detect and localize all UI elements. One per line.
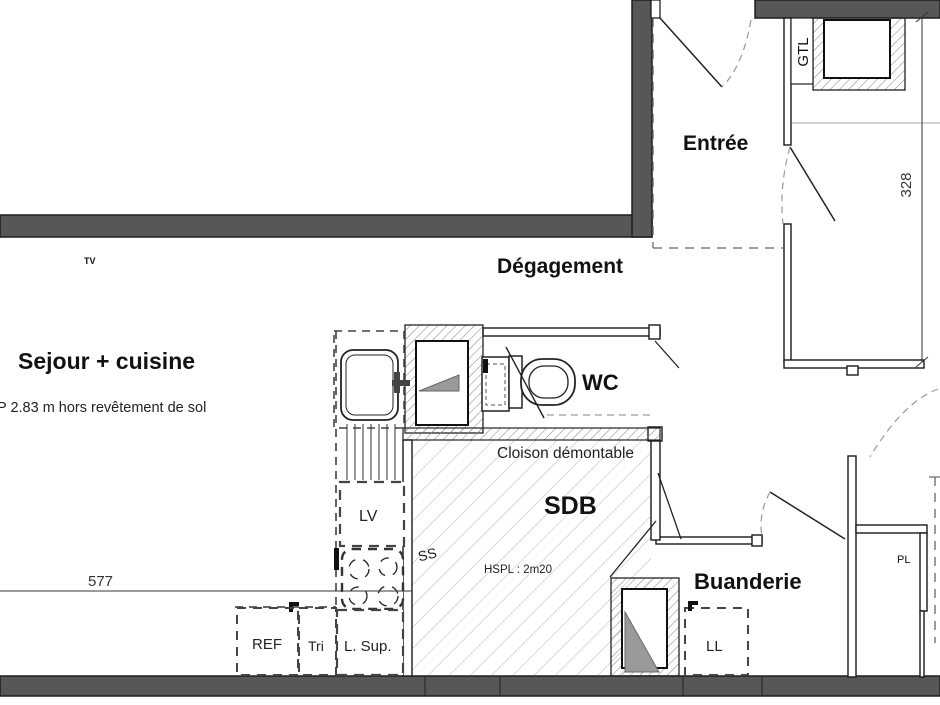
- label-tri: Tri: [308, 638, 324, 654]
- removable-partition-wall: [403, 428, 660, 440]
- entry-door-leaf: [660, 18, 722, 87]
- label-ref: REF: [252, 636, 282, 653]
- label-entree: Entrée: [683, 132, 748, 155]
- wall-top-left-horizontal: [0, 215, 652, 237]
- label-gtl: GTL: [795, 37, 812, 66]
- entry-door-swing: [722, 20, 751, 87]
- wall-buanderie-jamb: [752, 535, 762, 546]
- label-lsup: L. Sup.: [344, 638, 392, 655]
- label-ceiling-note: P 2.83 m hors revêtement de sol: [0, 400, 206, 416]
- wall-buanderie-top: [656, 537, 762, 544]
- label-dim-328: 328: [898, 172, 915, 197]
- buanderie-door-swing: [761, 492, 770, 537]
- wall-bottom: [0, 676, 940, 696]
- floor-plan-drawing: Sejour + cuisine P 2.83 m hors revêtemen…: [0, 0, 940, 705]
- wall-closet-top: [856, 525, 927, 533]
- cooktop-box: [342, 549, 403, 609]
- label-wc: WC: [582, 370, 619, 395]
- label-ll: LL: [706, 638, 723, 655]
- tiny-code-mark: [334, 548, 339, 570]
- wall-closet-vertical: [848, 456, 856, 677]
- drainer-stripes: [347, 424, 395, 480]
- wall-wc-jamb: [649, 325, 660, 339]
- wall-entree-right-upper: [784, 18, 791, 145]
- label-pl: PL: [897, 554, 910, 566]
- sdb-door-leaf: [658, 473, 681, 539]
- wall-closet-right-lower: [920, 611, 924, 677]
- floor-plan-page: Sejour + cuisine P 2.83 m hors revêtemen…: [0, 0, 940, 705]
- label-sejour-cuisine: Sejour + cuisine: [18, 348, 195, 374]
- label-hspl: HSPL : 2m20: [484, 564, 552, 576]
- tiny-code-mark-2: [483, 359, 488, 373]
- hall-door-swing: [870, 389, 938, 457]
- wall-wc-top: [483, 328, 660, 336]
- dashed-boundaries: [653, 18, 935, 643]
- label-tv: TV: [84, 256, 96, 266]
- kitchen: [235, 331, 410, 675]
- faucet-icon-2: [394, 372, 400, 393]
- wall-sdb-left: [403, 440, 412, 676]
- label-sdb: SDB: [544, 492, 597, 520]
- wc-fixtures: [482, 356, 575, 411]
- label-degagement: Dégagement: [497, 255, 623, 278]
- wall-hall-jamb: [847, 366, 858, 375]
- label-buanderie: Buanderie: [694, 569, 802, 594]
- wall-entree-right-lower: [784, 224, 791, 362]
- wall-top-left-vertical: [632, 0, 652, 237]
- sink-bowl: [341, 350, 398, 420]
- degagement-door-leaf: [655, 341, 679, 368]
- wall-top-right: [755, 0, 940, 18]
- label-cloison-demontable: Cloison démontable: [497, 445, 634, 462]
- gtl-shaft-inner: [824, 20, 890, 78]
- entree-inner-door-swing: [782, 147, 790, 224]
- entry-door-jamb: [651, 0, 660, 18]
- entree-inner-door-leaf: [790, 147, 835, 221]
- label-lv: LV: [359, 508, 378, 525]
- buanderie-door-leaf: [770, 492, 845, 539]
- label-dim-577: 577: [88, 573, 113, 590]
- wall-closet-right-upper: [920, 533, 927, 611]
- washer-hook-mark-2: [688, 601, 692, 611]
